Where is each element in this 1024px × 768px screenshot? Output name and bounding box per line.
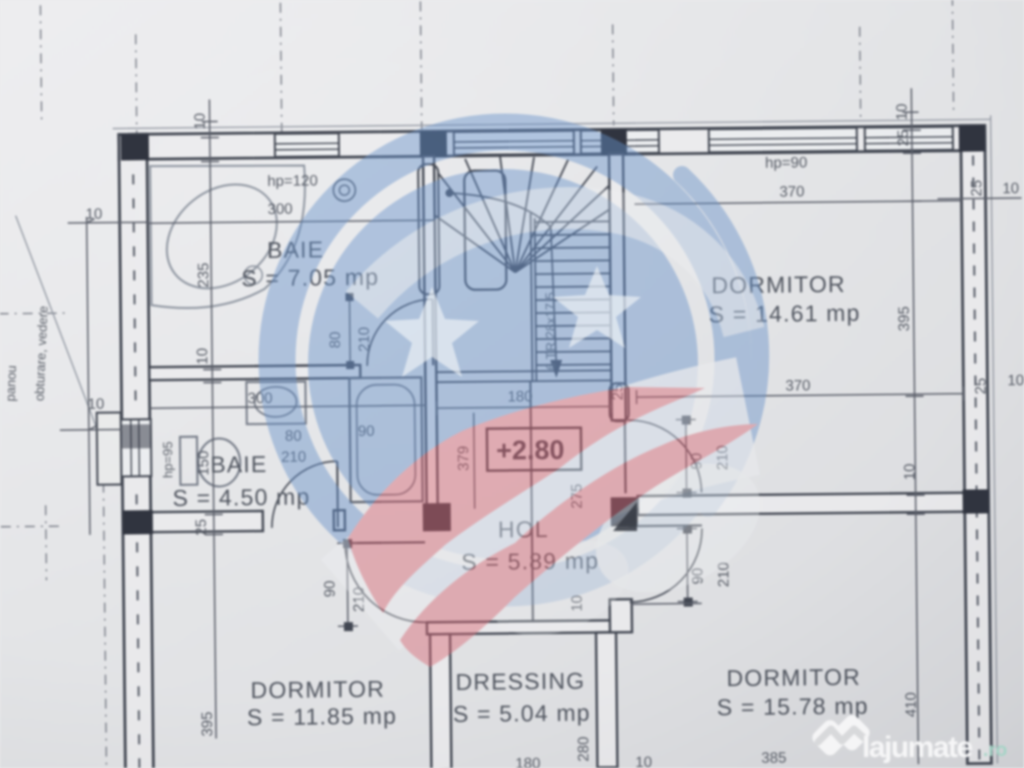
svg-text:lajumate: lajumate bbox=[862, 731, 973, 764]
svg-text:.ro: .ro bbox=[983, 740, 1007, 761]
